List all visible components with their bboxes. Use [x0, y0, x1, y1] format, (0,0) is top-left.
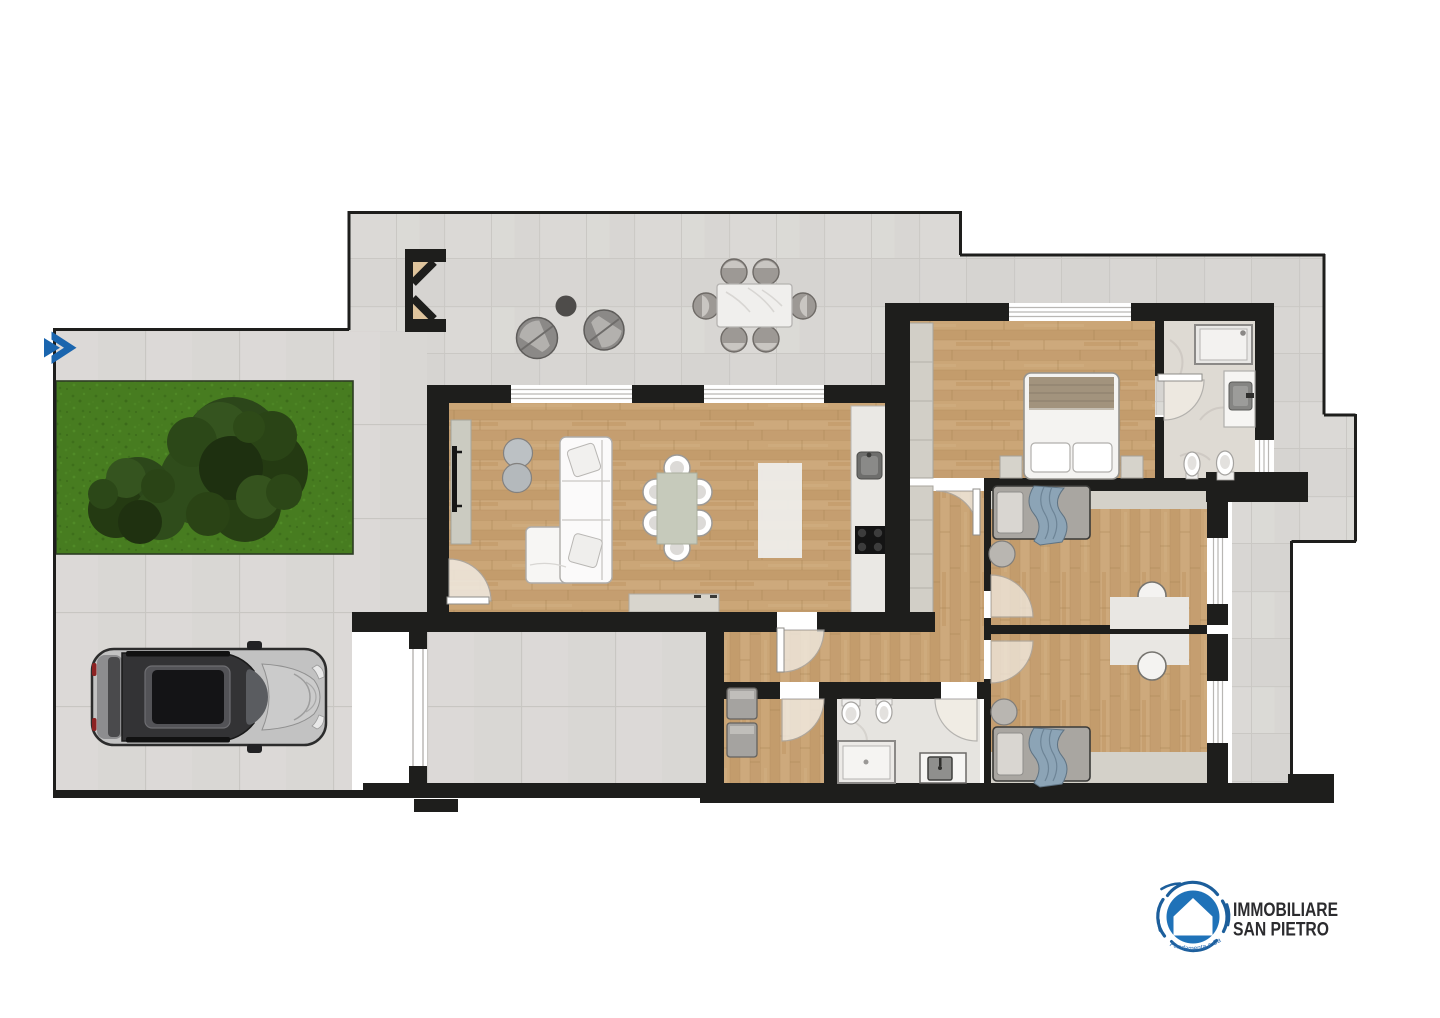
svg-text:SAN PIETRO: SAN PIETRO [1233, 919, 1329, 941]
